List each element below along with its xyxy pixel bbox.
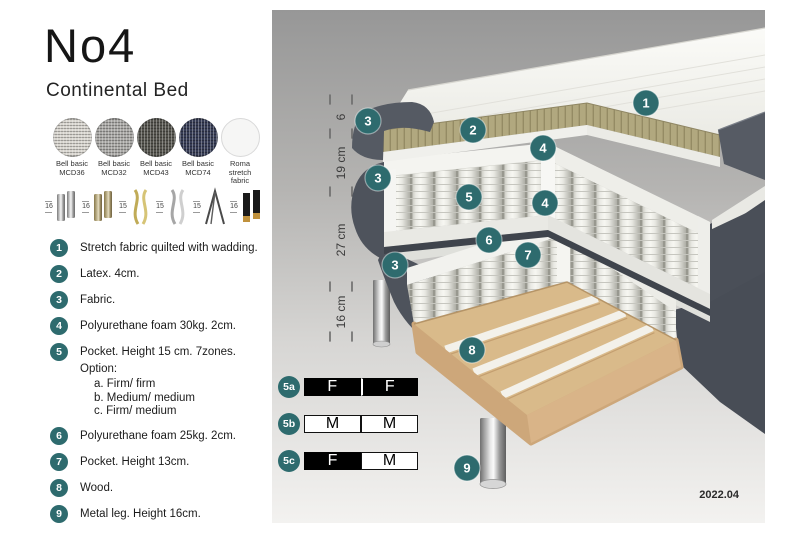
leg-option: 16 [229, 184, 266, 230]
callout-3c: 3 [382, 252, 408, 278]
feature-item: 6 Polyurethane foam 25kg. 2cm. [50, 427, 268, 445]
callout-7: 7 [515, 242, 541, 268]
firmness-row-5c: 5c F M [278, 450, 418, 472]
svg-text:4: 4 [539, 141, 547, 156]
svg-text:6: 6 [485, 233, 492, 248]
fabric-swatch: Bell basicMCD74 [177, 118, 219, 186]
callout-4: 4 [530, 135, 556, 161]
bed-cutaway-illustration: 6 19 cm 27 cm 16 cm [272, 10, 765, 523]
fabric-code: MCD36 [59, 168, 84, 177]
feature-number-badge: 7 [50, 453, 68, 471]
black-cylinder-leg-icon [239, 187, 265, 227]
svg-text:3: 3 [374, 171, 381, 186]
svg-text:8: 8 [468, 343, 475, 358]
feature-item: 7 Pocket. Height 13cm. [50, 453, 268, 471]
svg-text:2: 2 [469, 123, 476, 138]
leg-option: 15 [192, 184, 229, 230]
feature-item: 8 Wood. [50, 479, 268, 497]
callout-4b: 4 [532, 190, 558, 216]
callout-1: 1 [633, 90, 659, 116]
feature-text: Pocket. Height 15 cm. 7zones. Option: [80, 343, 268, 378]
feature-number-badge: 5 [50, 343, 68, 361]
feature-text: Metal leg. Height 16cm. [80, 505, 201, 523]
dimension-label: 16 cm [334, 296, 348, 329]
chrome-cylinder-leg-icon [54, 187, 80, 227]
svg-text:3: 3 [364, 114, 371, 129]
feature-text: Polyurethane foam 30kg. 2cm. [80, 317, 236, 335]
svg-text:5: 5 [465, 190, 472, 205]
bed-leg-back [373, 280, 390, 347]
fabric-swatch: Bell basicMCD36 [51, 118, 93, 186]
feature-number-badge: 4 [50, 317, 68, 335]
fabric-swatch-image [221, 118, 260, 157]
feature-option: a. Firm/ firm [94, 378, 268, 392]
version-label: 2022.04 [699, 489, 739, 501]
feature-option: c. Firm/ medium [94, 405, 268, 419]
fabric-swatch: Romastretch fabric [219, 118, 261, 186]
fabric-code: MCD43 [143, 168, 168, 177]
feature-number-badge: 1 [50, 239, 68, 257]
fabric-swatch-image [53, 118, 92, 157]
feature-number-badge: 3 [50, 291, 68, 309]
feature-text: Polyurethane foam 25kg. 2cm. [80, 427, 236, 445]
firmness-cell: F [304, 452, 361, 470]
callout-6: 6 [476, 227, 502, 253]
feature-item: 5 Pocket. Height 15 cm. 7zones. Option: … [50, 343, 268, 419]
feature-text: Latex. 4cm. [80, 265, 139, 283]
feature-number-badge: 8 [50, 479, 68, 497]
svg-text:7: 7 [524, 248, 531, 263]
feature-item: 9 Metal leg. Height 16cm. [50, 505, 268, 523]
chrome-curved-leg-icon [165, 187, 191, 227]
svg-text:1: 1 [642, 96, 649, 111]
leg-option: 15 [155, 184, 192, 230]
feature-text: Fabric. [80, 291, 115, 309]
feature-item: 3 Fabric. [50, 291, 268, 309]
gold-curved-leg-icon [128, 187, 154, 227]
diagram-panel: 6 19 cm 27 cm 16 cm [272, 10, 765, 523]
firmness-badge: 5c [278, 450, 300, 472]
leg-height: 15 [156, 203, 164, 211]
firmness-row-5a: 5a F F [278, 376, 418, 398]
leg-height: 15 [193, 203, 201, 211]
feature-item: 4 Polyurethane foam 30kg. 2cm. [50, 317, 268, 335]
firmness-cell: M [361, 415, 418, 433]
feature-option: b. Medium/ medium [94, 392, 268, 406]
fabric-code: stretch fabric [229, 168, 252, 186]
firmness-row-5b: 5b M M [278, 413, 418, 435]
leg-height: 16 [82, 203, 90, 211]
callout-9: 9 [454, 455, 480, 481]
leg-height: 16 [230, 203, 238, 211]
leg-height: 15 [119, 203, 127, 211]
feature-number-badge: 2 [50, 265, 68, 283]
leg-height: 16 [45, 203, 53, 211]
feature-text: Wood. [80, 479, 113, 497]
callout-2: 2 [460, 117, 486, 143]
svg-text:3: 3 [391, 258, 398, 273]
fabric-swatch-image [95, 118, 134, 157]
feature-options: a. Firm/ firm b. Medium/ medium c. Firm/… [94, 378, 268, 419]
leg-option: 16 [81, 184, 118, 230]
callout-8: 8 [459, 337, 485, 363]
feature-item: 2 Latex. 4cm. [50, 265, 268, 283]
spec-sheet: No4 Continental Bed Bell basicMCD36 Bell… [0, 0, 800, 533]
bed-leg-front [480, 418, 506, 489]
fabric-swatch-image [137, 118, 176, 157]
firmness-badge: 5b [278, 413, 300, 435]
dimension-ruler: 6 19 cm 27 cm 16 cm [330, 95, 352, 341]
callout-3: 3 [355, 108, 381, 134]
hairpin-leg-icon [202, 187, 228, 227]
fabric-swatch: Bell basicMCD43 [135, 118, 177, 186]
fabric-swatch-image [179, 118, 218, 157]
fabric-swatch-row: Bell basicMCD36 Bell basicMCD32 Bell bas… [51, 118, 261, 186]
svg-text:9: 9 [463, 461, 470, 476]
svg-text:4: 4 [541, 196, 549, 211]
leg-option: 16 [44, 184, 81, 230]
feature-text: Stretch fabric quilted with wadding. [80, 239, 258, 257]
info-column: No4 Continental Bed Bell basicMCD36 Bell… [0, 0, 272, 533]
feature-number-badge: 6 [50, 427, 68, 445]
bronze-cylinder-leg-icon [91, 187, 117, 227]
firmness-cell: F [361, 378, 419, 396]
firmness-cell: M [304, 415, 361, 433]
product-subtitle: Continental Bed [46, 80, 189, 102]
feature-item: 1 Stretch fabric quilted with wadding. [50, 239, 268, 257]
dimension-label: 6 [334, 113, 348, 120]
fabric-swatch: Bell basicMCD32 [93, 118, 135, 186]
leg-option-row: 16 16 15 15 [44, 184, 266, 230]
firmness-cell: F [304, 378, 361, 396]
callout-5: 5 [456, 184, 482, 210]
callout-3b: 3 [365, 165, 391, 191]
fabric-code: MCD74 [185, 168, 210, 177]
firmness-badge: 5a [278, 376, 300, 398]
product-title: No4 [44, 22, 136, 69]
feature-text: Pocket. Height 13cm. [80, 453, 189, 471]
dimension-label: 19 cm [334, 147, 348, 180]
firmness-cell: M [361, 452, 418, 470]
leg-option: 15 [118, 184, 155, 230]
feature-number-badge: 9 [50, 505, 68, 523]
dimension-label: 27 cm [334, 224, 348, 257]
fabric-code: MCD32 [101, 168, 126, 177]
feature-list: 1 Stretch fabric quilted with wadding. 2… [50, 239, 268, 531]
